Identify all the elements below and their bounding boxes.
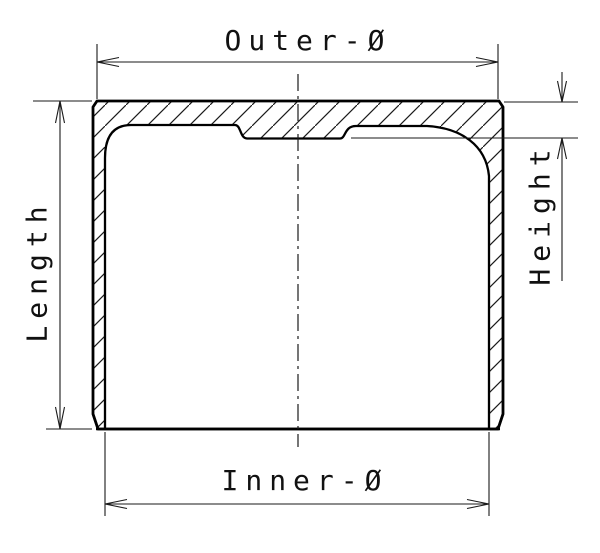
outer-diameter-label: Outer-Ø [224,24,391,57]
inner-profile-outline [105,125,489,429]
height-label: Height [524,142,557,285]
length-label: Length [21,199,54,342]
tappet-cross-section-svg: Outer-Ø Length Height [0,0,600,553]
inner-diameter-label: Inner-Ø [221,464,388,497]
drawing-canvas: Outer-Ø Length Height [0,0,600,553]
technical-drawing: Outer-Ø Length Height [0,0,600,553]
